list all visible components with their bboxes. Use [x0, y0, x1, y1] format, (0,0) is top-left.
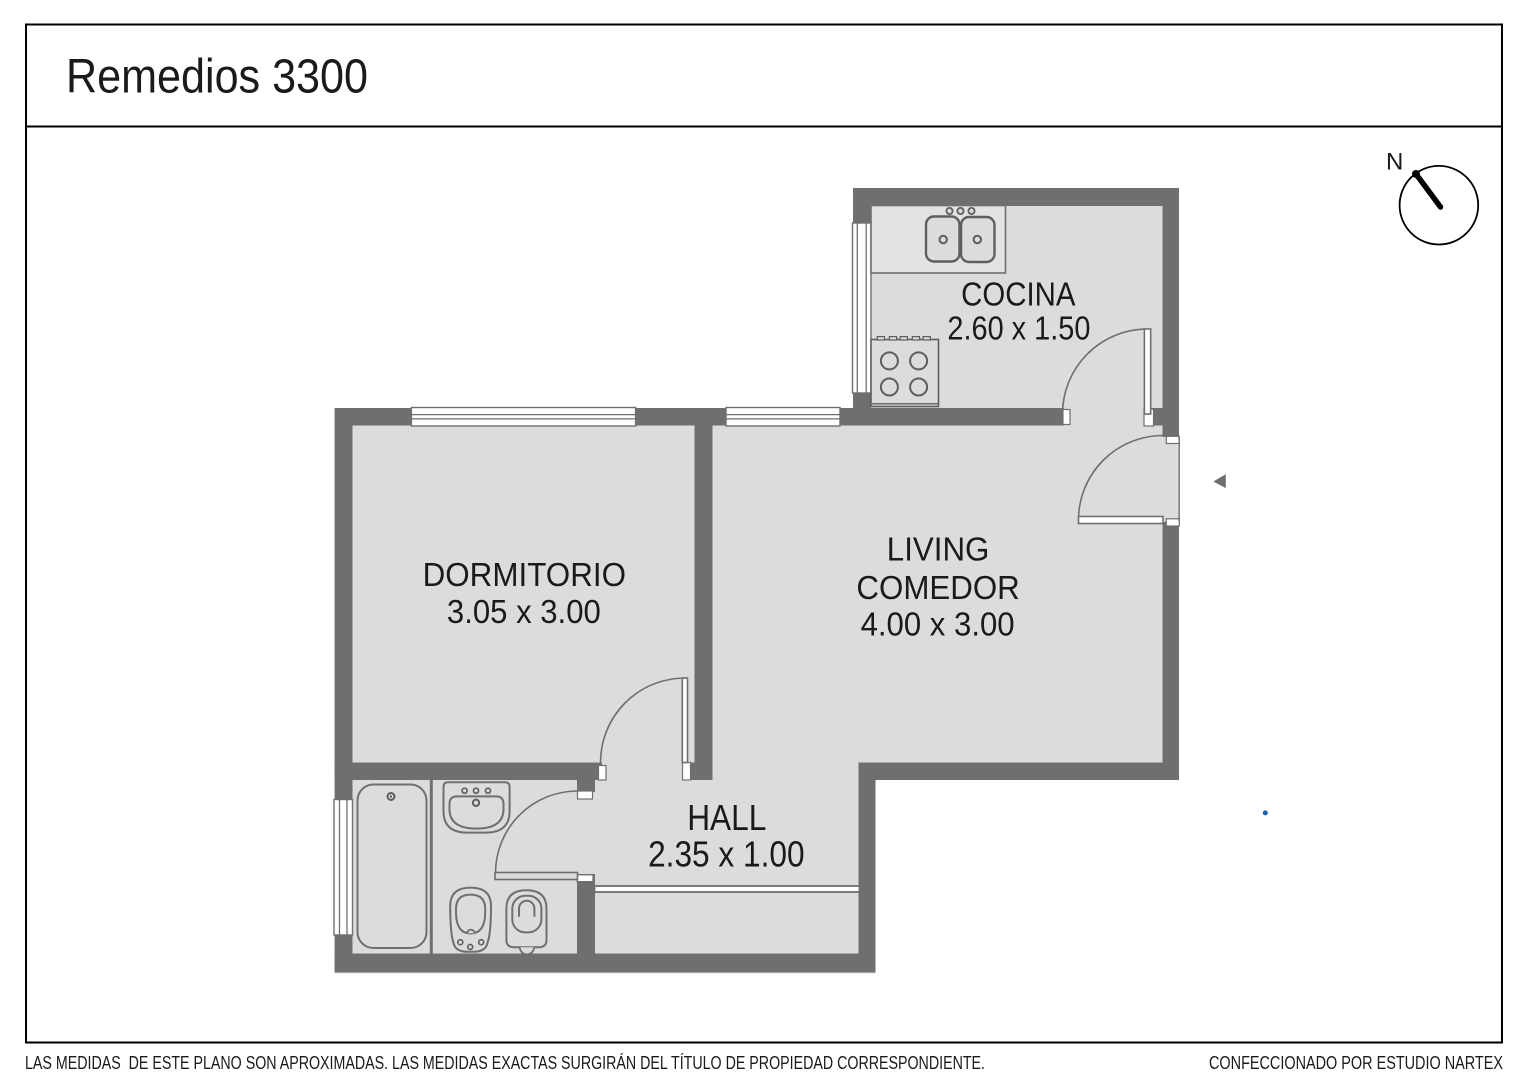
svg-text:DORMITORIO: DORMITORIO — [423, 556, 626, 593]
svg-text:CONFECCIONADO POR ESTUDIO NART: CONFECCIONADO POR ESTUDIO NARTEX — [1209, 1052, 1503, 1073]
svg-text:Remedios 3300: Remedios 3300 — [66, 50, 368, 104]
svg-text:COMEDOR: COMEDOR — [856, 569, 1019, 606]
svg-text:3.05 x 3.00: 3.05 x 3.00 — [447, 593, 601, 630]
svg-text:4.00 x 3.00: 4.00 x 3.00 — [861, 606, 1015, 643]
svg-text:N: N — [1386, 149, 1403, 176]
svg-text:2.35 x 1.00: 2.35 x 1.00 — [648, 834, 805, 875]
svg-text:COCINA: COCINA — [961, 275, 1075, 312]
svg-text:2.60 x 1.50: 2.60 x 1.50 — [947, 310, 1090, 347]
svg-text:HALL: HALL — [687, 797, 766, 838]
svg-text:LAS MEDIDAS DE ESTE PLANO SON: LAS MEDIDAS DE ESTE PLANO SON APROXIMADA… — [25, 1052, 985, 1073]
svg-text:LIVING: LIVING — [887, 530, 990, 567]
